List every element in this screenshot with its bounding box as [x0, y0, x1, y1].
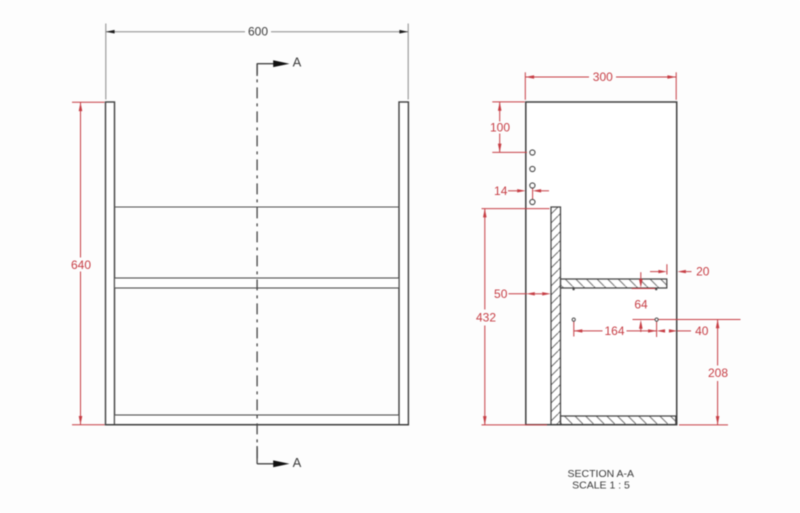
svg-text:164: 164 — [604, 324, 624, 338]
svg-text:64: 64 — [634, 297, 648, 311]
svg-text:300: 300 — [593, 70, 613, 84]
svg-text:50: 50 — [494, 287, 508, 301]
svg-text:SCALE 1 : 5: SCALE 1 : 5 — [572, 479, 630, 491]
svg-text:20: 20 — [696, 265, 710, 279]
svg-text:A: A — [293, 455, 302, 470]
svg-text:640: 640 — [71, 258, 91, 272]
svg-text:40: 40 — [695, 324, 709, 338]
svg-text:432: 432 — [476, 310, 496, 324]
svg-text:A: A — [293, 55, 302, 70]
svg-text:600: 600 — [248, 25, 268, 39]
svg-text:14: 14 — [494, 184, 508, 198]
svg-text:100: 100 — [490, 120, 510, 134]
svg-text:208: 208 — [708, 366, 728, 380]
svg-text:SECTION A-A: SECTION A-A — [568, 468, 635, 480]
